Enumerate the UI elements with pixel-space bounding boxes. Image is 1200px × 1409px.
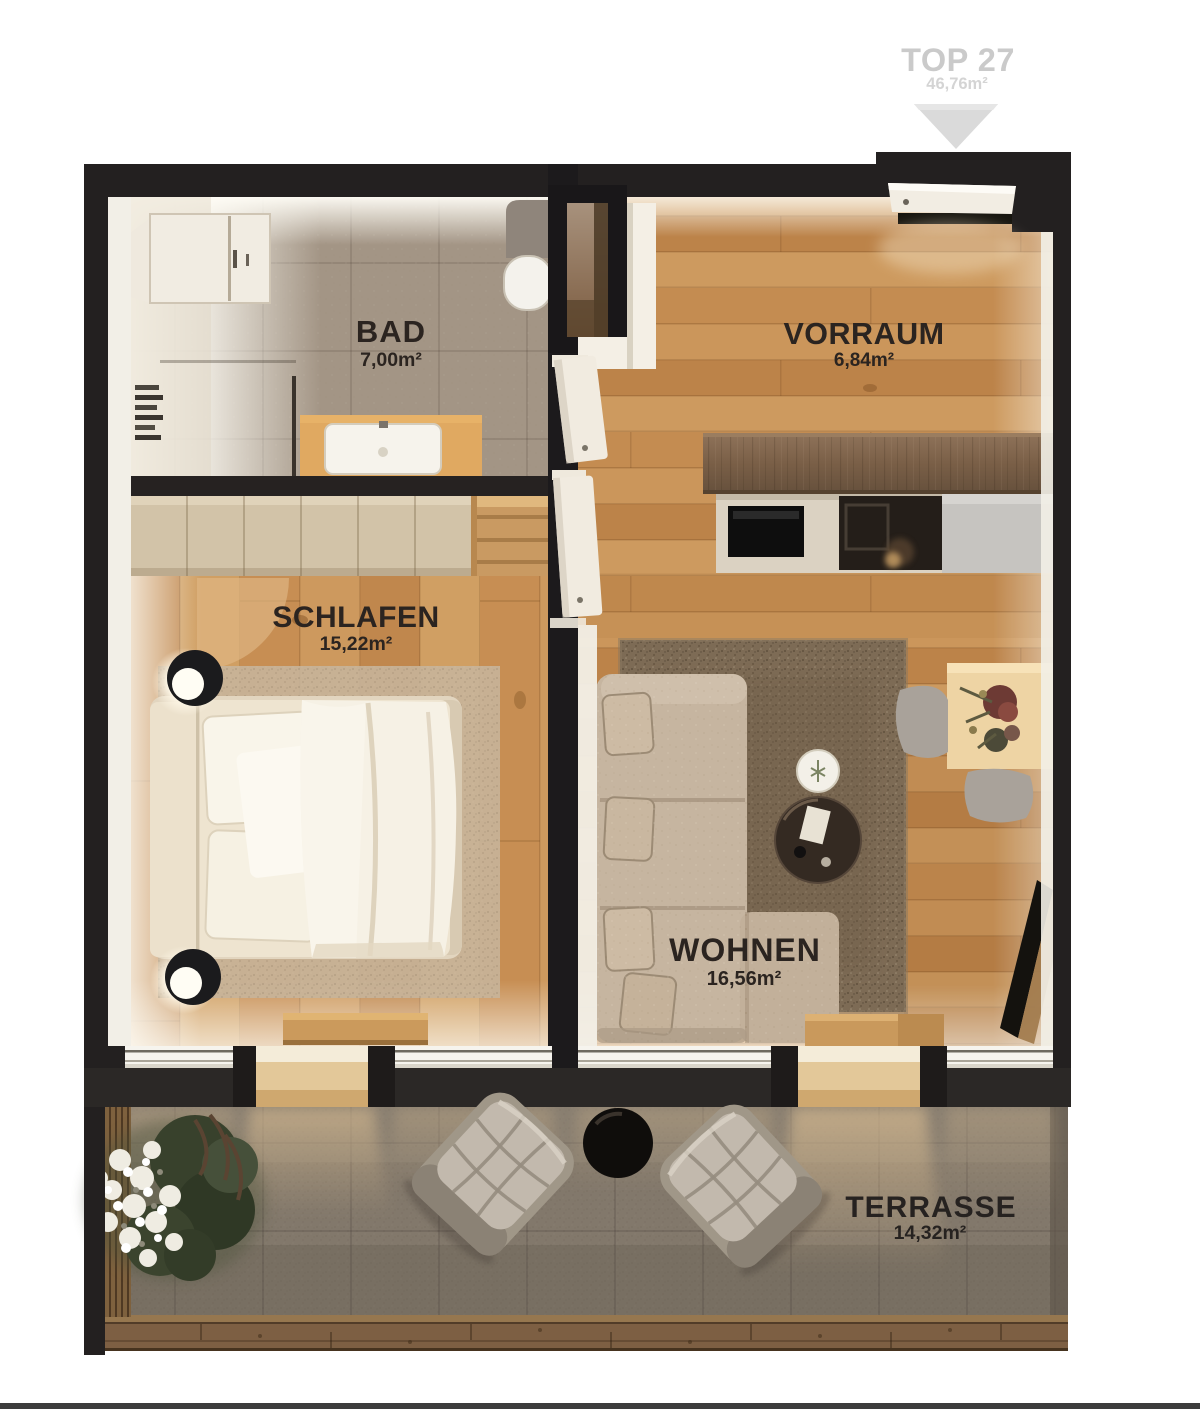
svg-text:16,56m²: 16,56m² bbox=[707, 968, 782, 990]
svg-text:46,76m²: 46,76m² bbox=[926, 75, 988, 93]
svg-text:TOP 27: TOP 27 bbox=[901, 42, 1015, 78]
svg-text:7,00m²: 7,00m² bbox=[360, 349, 422, 371]
svg-text:TERRASSE: TERRASSE bbox=[845, 1191, 1016, 1224]
svg-text:15,22m²: 15,22m² bbox=[320, 633, 393, 655]
svg-text:BAD: BAD bbox=[356, 314, 426, 349]
svg-text:14,32m²: 14,32m² bbox=[894, 1222, 967, 1244]
svg-text:6,84m²: 6,84m² bbox=[834, 350, 894, 371]
svg-text:SCHLAFEN: SCHLAFEN bbox=[272, 601, 439, 634]
svg-text:VORRAUM: VORRAUM bbox=[783, 317, 944, 351]
svg-text:WOHNEN: WOHNEN bbox=[669, 932, 821, 968]
